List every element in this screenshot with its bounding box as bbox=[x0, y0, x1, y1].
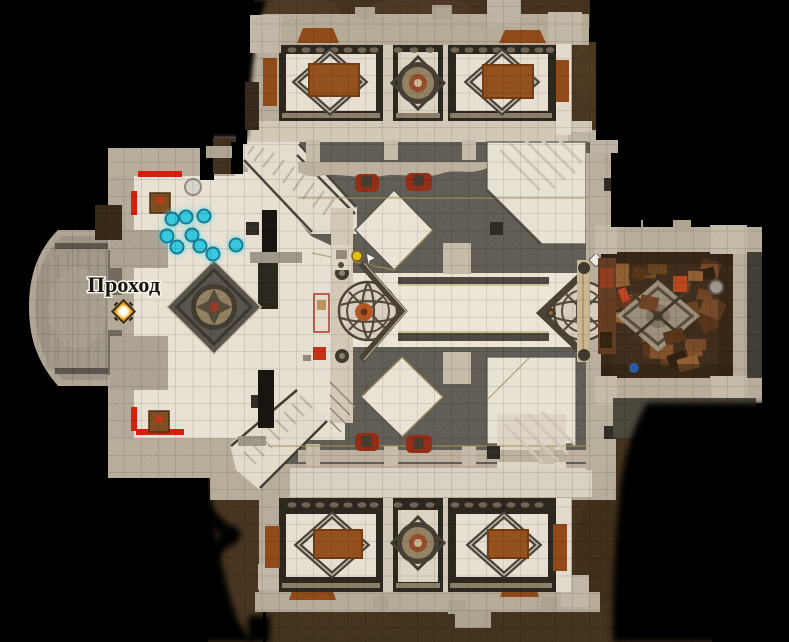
svg-text:Проход: Проход bbox=[88, 272, 161, 297]
